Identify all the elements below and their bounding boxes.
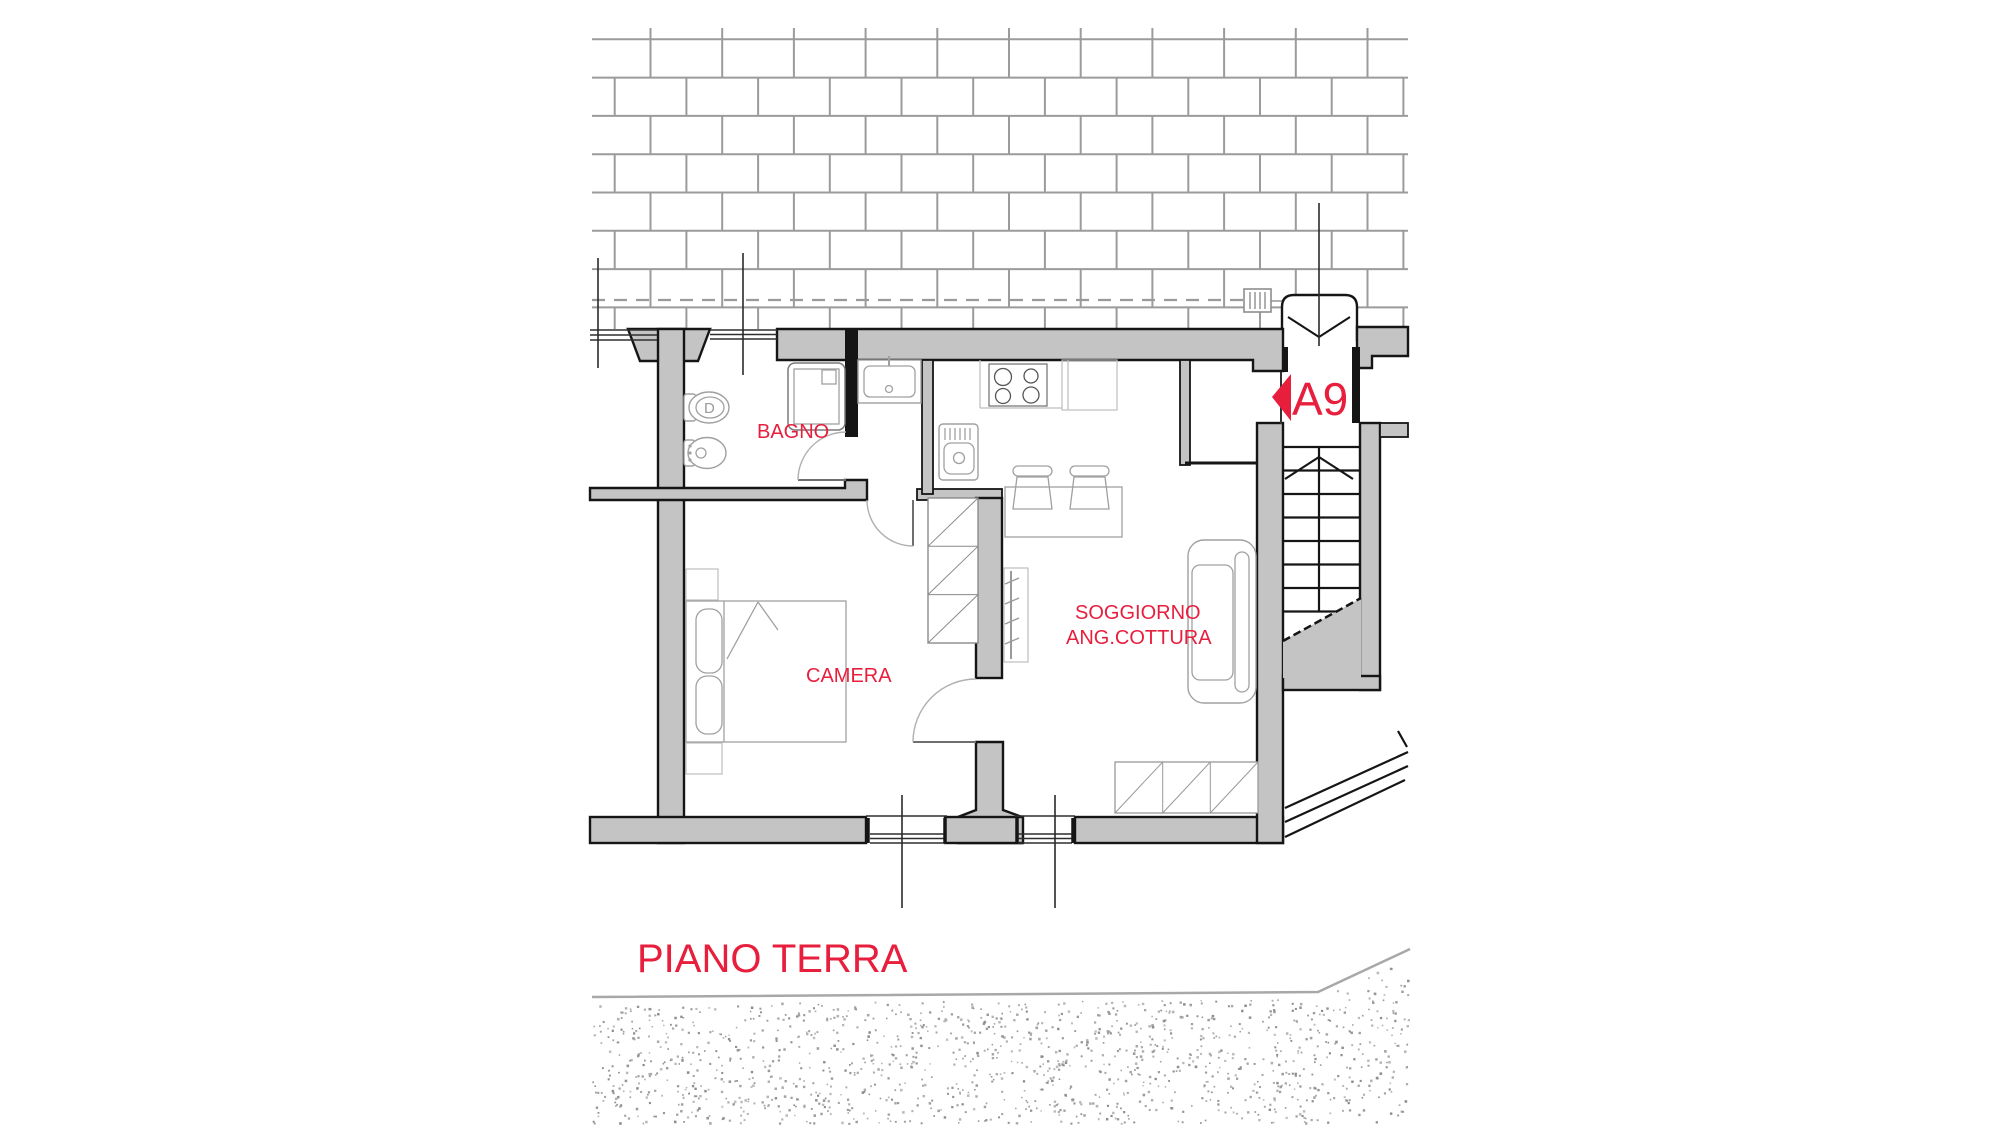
radiator-icon bbox=[1004, 568, 1028, 662]
bathroom-bedroom-wall bbox=[590, 480, 867, 500]
bedroom-furniture bbox=[686, 498, 978, 774]
wall-right-of-stair bbox=[1380, 423, 1408, 437]
bathroom-fixtures: D bbox=[684, 356, 921, 469]
living-bedroom-door bbox=[913, 679, 976, 742]
staircase bbox=[1283, 446, 1361, 678]
shower-icon bbox=[788, 363, 845, 430]
room-label-bathroom: BAGNO bbox=[757, 421, 829, 443]
right-exterior-wall bbox=[1257, 423, 1283, 843]
unit-label: A9 bbox=[1292, 373, 1348, 425]
kitchen-sink-icon bbox=[939, 424, 978, 480]
vestibule-left-wall bbox=[1283, 347, 1288, 372]
stove-icon bbox=[989, 364, 1047, 406]
toilet-letter: D bbox=[704, 400, 715, 417]
floor-title: PIANO TERRA bbox=[637, 937, 908, 981]
stairwell-bottom-wall bbox=[1283, 676, 1380, 690]
corridor-right-partition bbox=[922, 360, 933, 494]
room-label-living-2: ANG.COTTURA bbox=[1066, 627, 1212, 649]
room-label-living-1: SOGGIORNO bbox=[1075, 602, 1201, 624]
bathroom-partition bbox=[845, 330, 858, 437]
bedroom-living-partition bbox=[976, 498, 1002, 678]
hall-kitchen-partition bbox=[1180, 360, 1190, 465]
stair-break-fill bbox=[1283, 598, 1361, 678]
bottom-wall-right bbox=[1075, 817, 1283, 843]
bidet-icon bbox=[684, 438, 726, 469]
floor-plan-drawing: D bbox=[0, 0, 2000, 1125]
wardrobe bbox=[928, 498, 978, 643]
washbasin-icon bbox=[858, 356, 921, 403]
bottom-wall-center bbox=[945, 817, 1023, 843]
bedroom-door bbox=[867, 500, 913, 546]
nightstand bbox=[686, 743, 722, 774]
floor-plan-sheet: D bbox=[0, 0, 2000, 1125]
left-exterior-wall bbox=[658, 329, 684, 843]
kitchen-table bbox=[1005, 487, 1122, 537]
grate-icon bbox=[1244, 289, 1282, 312]
window-bedroom bbox=[866, 816, 947, 843]
sideboard bbox=[1115, 762, 1258, 813]
boundary-lines bbox=[1285, 731, 1408, 837]
bottom-wall-left bbox=[590, 817, 866, 843]
room-label-bedroom: CAMERA bbox=[806, 665, 892, 687]
vestibule-right-wall bbox=[1352, 347, 1360, 423]
brick-wall-pattern bbox=[592, 28, 1408, 329]
stairwell-right-wall bbox=[1360, 423, 1380, 690]
toilet-icon: D bbox=[684, 392, 729, 423]
top-right-wall bbox=[1357, 327, 1408, 368]
nightstand bbox=[686, 569, 718, 600]
kitchen-cabinet bbox=[1062, 360, 1117, 410]
living-furniture bbox=[1004, 540, 1258, 813]
